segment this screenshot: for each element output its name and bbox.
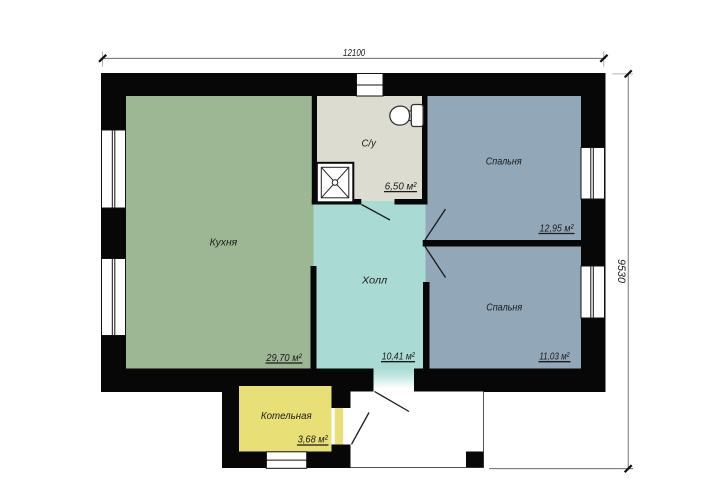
svg-text:Спальня: Спальня <box>486 303 523 314</box>
svg-text:6,50 м²: 6,50 м² <box>385 181 417 192</box>
svg-text:29,70 м²: 29,70 м² <box>265 353 302 364</box>
svg-text:3,68 м²: 3,68 м² <box>298 435 328 446</box>
svg-text:12100: 12100 <box>343 47 365 59</box>
svg-text:12,95 м²: 12,95 м² <box>540 223 574 234</box>
svg-text:Холл: Холл <box>361 276 388 287</box>
svg-text:С/у: С/у <box>362 139 377 150</box>
svg-text:9530: 9530 <box>615 259 627 284</box>
svg-text:11,03 м²: 11,03 м² <box>539 351 570 362</box>
svg-text:10,41 м²: 10,41 м² <box>382 352 415 363</box>
svg-text:Котельная: Котельная <box>261 411 312 422</box>
svg-text:Спальня: Спальня <box>486 157 522 168</box>
svg-text:Кухня: Кухня <box>210 238 238 249</box>
